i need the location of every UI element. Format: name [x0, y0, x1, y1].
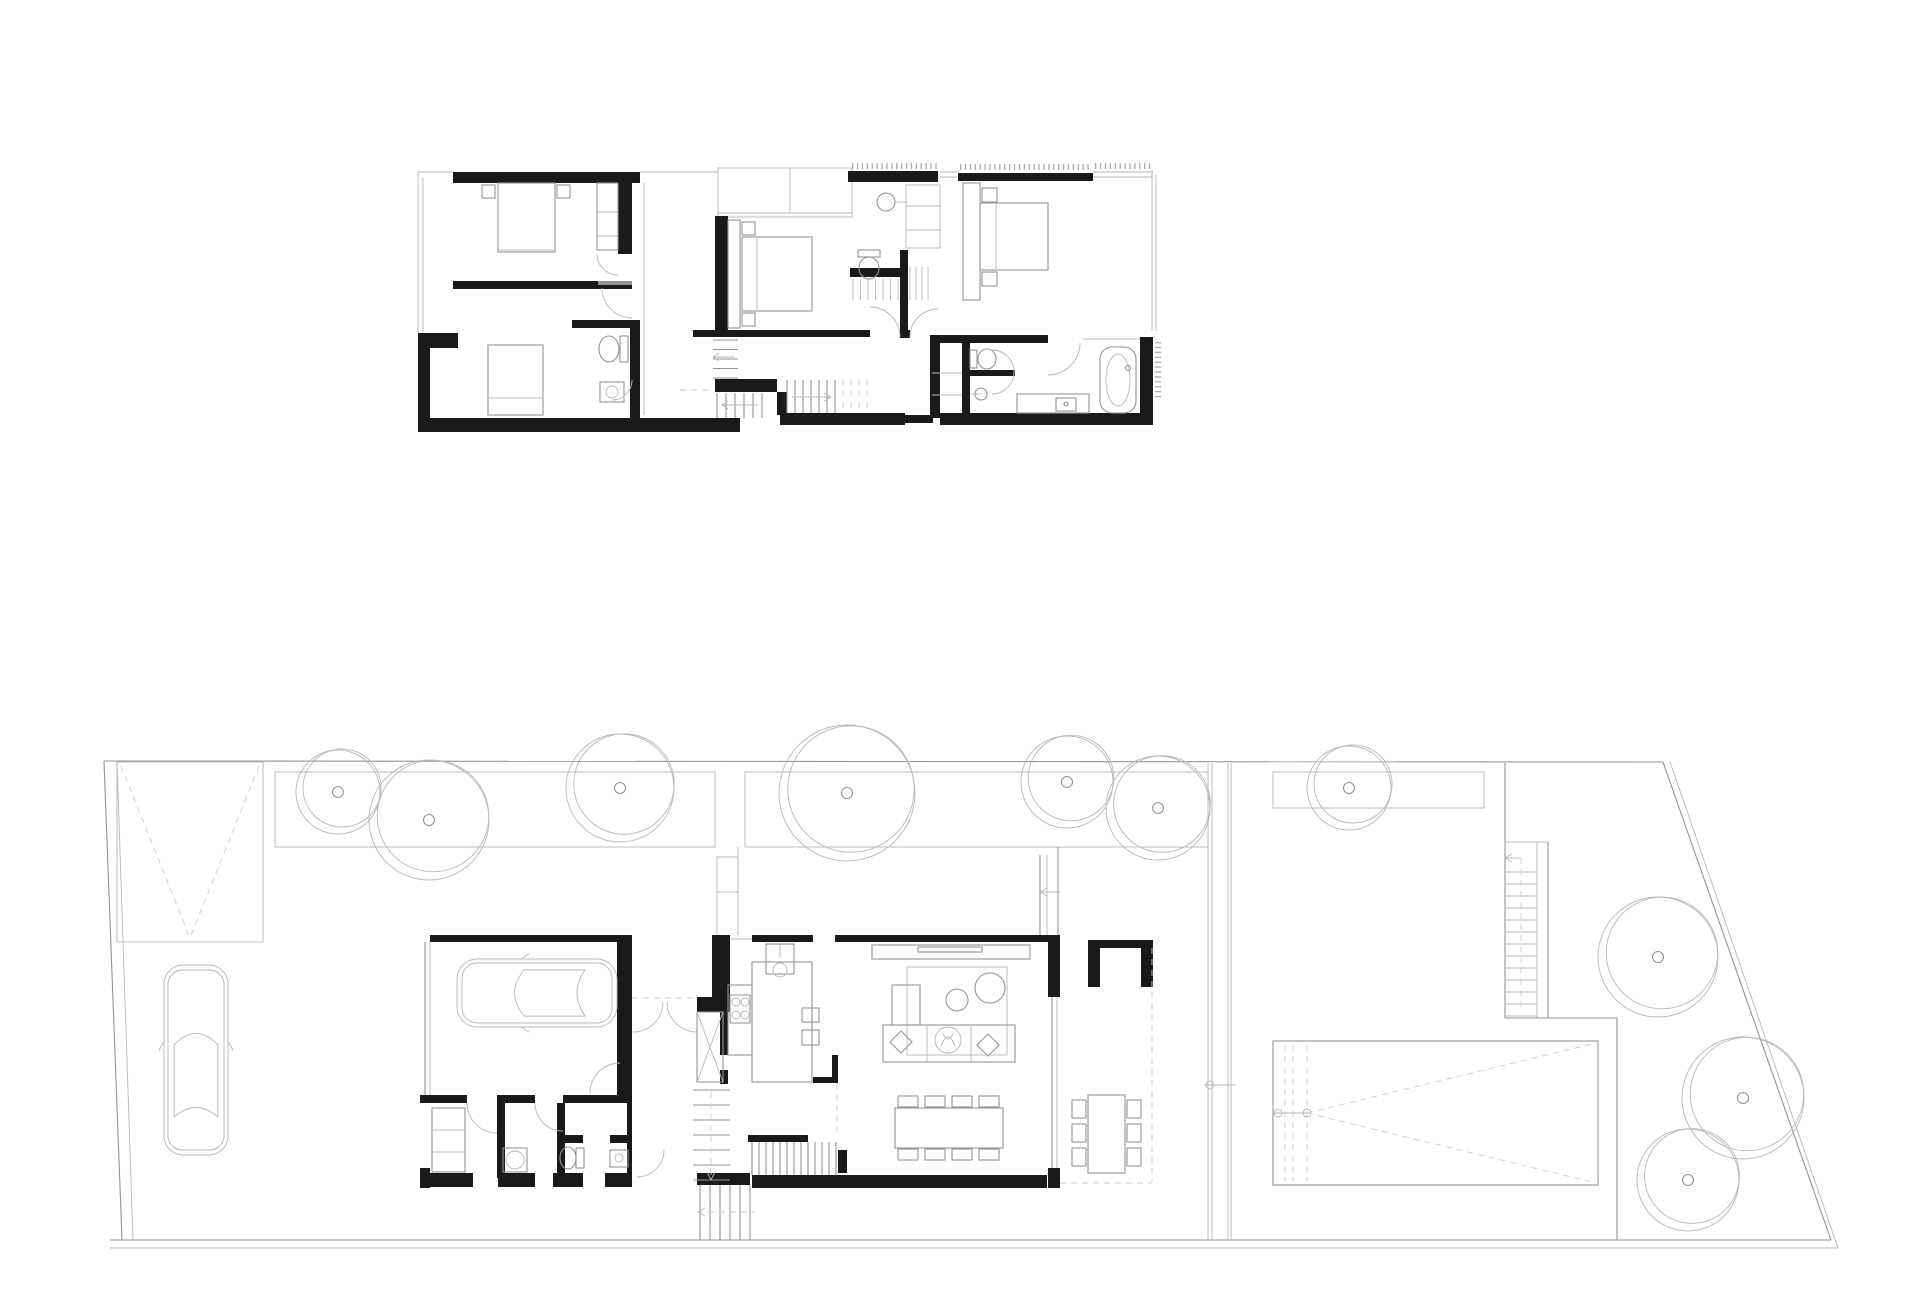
nightstand — [982, 272, 997, 286]
wall — [430, 935, 617, 942]
nightstand — [982, 188, 997, 202]
floor-plan-page — [0, 0, 1920, 1316]
door-arc — [602, 288, 632, 318]
bed — [498, 183, 555, 252]
wall — [420, 1168, 430, 1188]
tree — [1637, 1129, 1739, 1231]
tree — [1598, 897, 1718, 1017]
tv — [918, 947, 982, 952]
cushion — [890, 1031, 912, 1053]
closet — [432, 1108, 465, 1172]
tree — [1106, 756, 1210, 860]
wall — [780, 413, 905, 425]
nightstand — [557, 185, 570, 198]
wall — [418, 418, 640, 432]
wall — [572, 320, 632, 328]
wall — [968, 370, 1015, 376]
closet-row — [718, 168, 852, 217]
nightstand — [482, 185, 495, 198]
tree — [566, 734, 674, 842]
side-table — [975, 973, 1005, 1003]
wall — [720, 942, 728, 1055]
chair — [979, 1096, 999, 1107]
car-parked — [159, 965, 233, 1155]
ground-floor-site-plan — [104, 725, 1838, 1248]
bed — [488, 345, 543, 415]
tree — [779, 725, 915, 861]
bath-cabinet — [906, 185, 940, 248]
wall — [715, 216, 728, 333]
chair — [1127, 1124, 1141, 1142]
entry-door-arc — [633, 1002, 663, 1032]
sink — [1056, 398, 1076, 411]
wall — [903, 415, 933, 423]
nightstand — [742, 222, 755, 235]
door-arc — [597, 254, 618, 275]
wall — [557, 1135, 583, 1143]
wall — [777, 392, 787, 415]
bathtub — [1100, 347, 1136, 413]
chair — [1072, 1100, 1086, 1118]
wall — [697, 1173, 750, 1185]
chair — [1072, 1148, 1086, 1166]
wall — [900, 250, 908, 338]
chair — [898, 1149, 918, 1160]
wall — [1140, 337, 1153, 425]
tree — [369, 760, 489, 880]
floor-plan-drawing — [0, 0, 1920, 1316]
wall — [835, 935, 1057, 942]
chair — [1072, 1124, 1086, 1142]
car-in-garage — [457, 954, 617, 1032]
wall — [453, 172, 640, 183]
tree — [1307, 745, 1392, 830]
garden-steps — [700, 1185, 750, 1240]
wall — [1048, 1168, 1060, 1188]
dining-table — [895, 1108, 1003, 1148]
vanity — [1017, 394, 1089, 413]
staircase — [752, 1142, 836, 1175]
wall — [752, 1175, 1047, 1188]
wall — [618, 183, 632, 254]
stool — [802, 1030, 819, 1045]
wall — [940, 413, 1153, 425]
wall — [563, 1095, 632, 1103]
chair — [1127, 1148, 1141, 1166]
tread-grid — [843, 380, 867, 413]
site-boundary — [104, 761, 1663, 762]
chair — [898, 1096, 918, 1107]
chaise — [892, 985, 920, 1025]
plant — [935, 1027, 961, 1053]
wall — [630, 320, 640, 418]
wall — [1048, 935, 1060, 997]
door-arc — [590, 1063, 620, 1093]
washbasin — [877, 193, 895, 211]
toilet — [978, 349, 996, 369]
outdoor-table — [1088, 1095, 1125, 1173]
chair — [925, 1096, 945, 1107]
cushion — [977, 1034, 999, 1056]
chair — [979, 1149, 999, 1160]
wall — [962, 343, 970, 413]
wall — [838, 1150, 847, 1173]
door-arc — [637, 1150, 664, 1177]
wall — [418, 333, 458, 348]
wall — [617, 935, 632, 1102]
wall — [715, 379, 777, 392]
stair-flight — [717, 393, 762, 418]
door-arc — [910, 309, 938, 337]
tree — [1021, 735, 1114, 828]
side-table — [946, 989, 968, 1011]
wall — [420, 1095, 467, 1103]
wall — [748, 1135, 808, 1142]
wall — [497, 1095, 535, 1103]
wall — [832, 1055, 838, 1083]
sink — [610, 1150, 628, 1167]
wall — [930, 335, 940, 418]
toilet — [599, 336, 619, 362]
wall — [958, 173, 1093, 181]
wardrobe — [597, 183, 618, 250]
sofa — [883, 1025, 1015, 1062]
bed — [742, 237, 812, 311]
stair-flight — [787, 380, 835, 413]
pool — [1273, 1041, 1598, 1185]
wall — [693, 330, 870, 337]
entry-door-arc — [667, 1002, 697, 1032]
planter — [1273, 772, 1484, 808]
door-arc — [467, 1103, 497, 1133]
headboard — [728, 220, 740, 328]
wall — [848, 171, 938, 182]
wall — [752, 935, 813, 942]
wall — [940, 335, 1048, 343]
chair — [1127, 1100, 1141, 1118]
entry-steps — [693, 1090, 730, 1180]
nightstand — [742, 313, 755, 326]
chair — [925, 1149, 945, 1160]
washer — [503, 1148, 527, 1172]
wall — [497, 1103, 505, 1178]
sink — [600, 382, 624, 402]
bed — [980, 203, 1048, 270]
door-arc — [1048, 343, 1080, 375]
shower-grid — [910, 267, 928, 300]
chair — [952, 1149, 972, 1160]
wall — [553, 1173, 583, 1187]
door-arc — [870, 307, 900, 337]
wall — [622, 418, 740, 432]
wall — [605, 1173, 632, 1187]
chair — [952, 1096, 972, 1107]
wall — [498, 1173, 535, 1187]
site-boundary — [1663, 762, 1831, 1240]
driveway-ramp — [117, 762, 263, 942]
entry-walk — [717, 857, 738, 892]
planter — [275, 772, 715, 847]
wall — [418, 348, 430, 418]
upper-floor-plan — [418, 166, 1158, 432]
stool — [802, 1008, 819, 1022]
headboard — [963, 183, 980, 300]
planter — [745, 772, 1208, 847]
shower-grid — [853, 279, 898, 300]
